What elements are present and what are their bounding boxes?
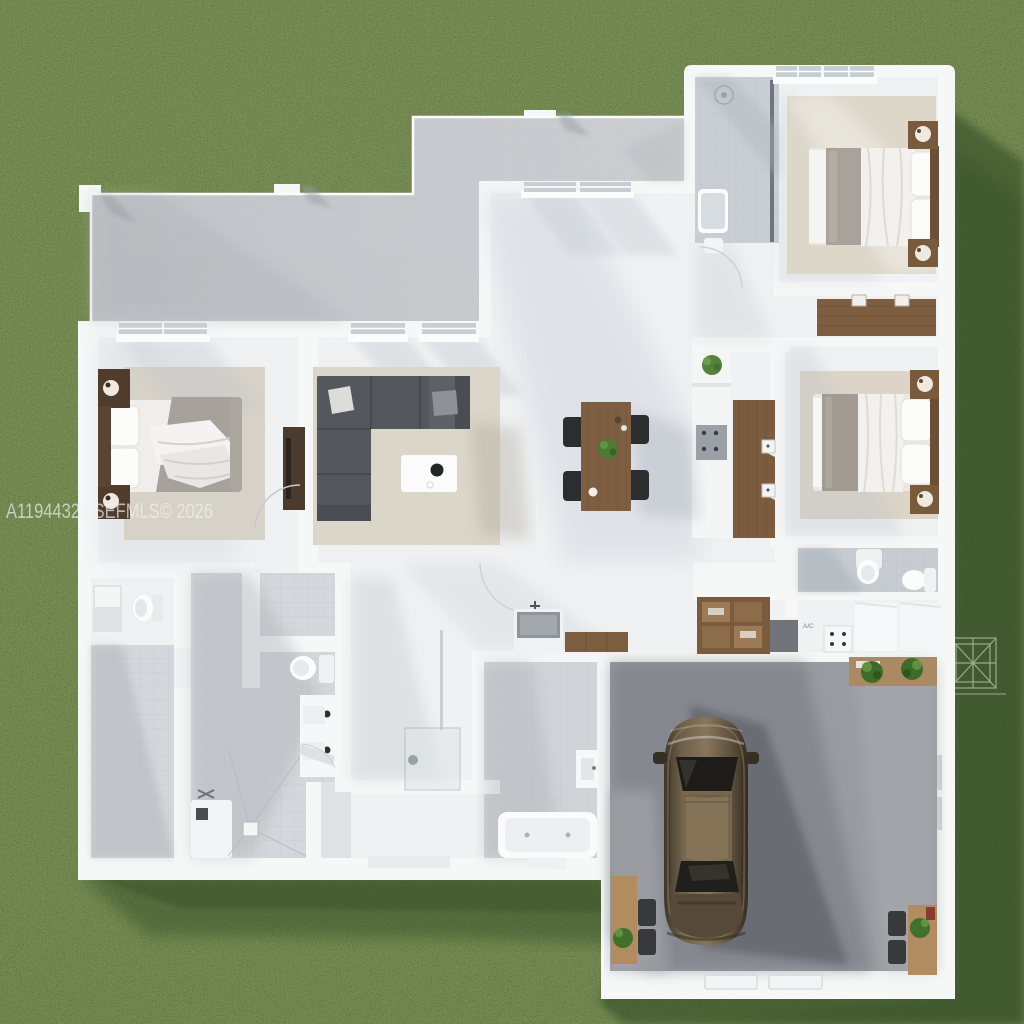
svg-text:A/C: A/C — [803, 623, 814, 630]
svg-text:A11944323 SEFMLS© 2026: A11944323 SEFMLS© 2026 — [6, 499, 213, 523]
